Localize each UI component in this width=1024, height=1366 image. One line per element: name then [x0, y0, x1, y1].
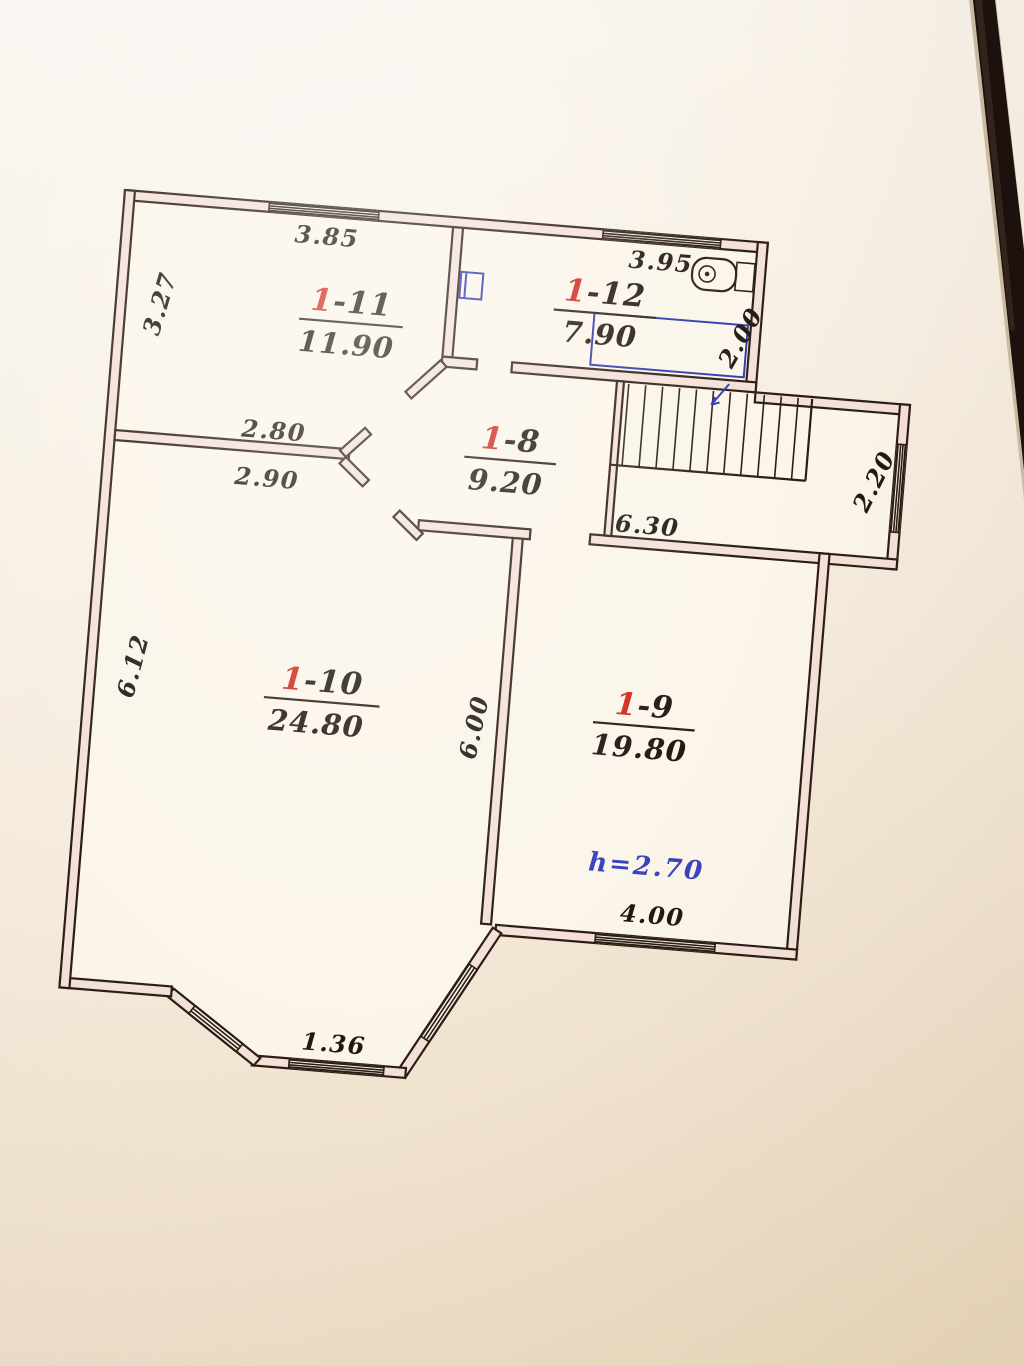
photo-edge-shadow — [969, 0, 1024, 500]
dim-wall-above: 2.80 — [239, 413, 307, 447]
room-area: 9.20 — [467, 462, 544, 502]
dim-room12-width: 3.95 — [628, 245, 695, 279]
room-number: 1-8 — [480, 420, 542, 461]
room-area: 7.90 — [561, 314, 638, 354]
photographed-paper-sheet: 1-11 11.90 1-12 7.90 1-8 9.20 1-10 24.80… — [0, 0, 1024, 1366]
room-number: 1-11 — [309, 282, 393, 325]
building-footprint — [54, 190, 922, 1115]
plan-group: 1-11 11.90 1-12 7.90 1-8 9.20 1-10 24.80… — [54, 190, 922, 1115]
dim-wall-below: 2.90 — [233, 461, 301, 495]
floor-plan-drawing: 1-11 11.90 1-12 7.90 1-8 9.20 1-10 24.80… — [0, 0, 1024, 1366]
dim-room9-window: 4.00 — [619, 898, 686, 932]
dim-room11-width: 3.85 — [294, 219, 361, 253]
room-number: 1-10 — [280, 661, 364, 704]
dim-hall-span: 6.30 — [614, 508, 681, 542]
dim-bay-window: 1.36 — [300, 1026, 367, 1060]
room-number: 1-12 — [563, 272, 647, 315]
room-number: 1-9 — [614, 686, 676, 727]
